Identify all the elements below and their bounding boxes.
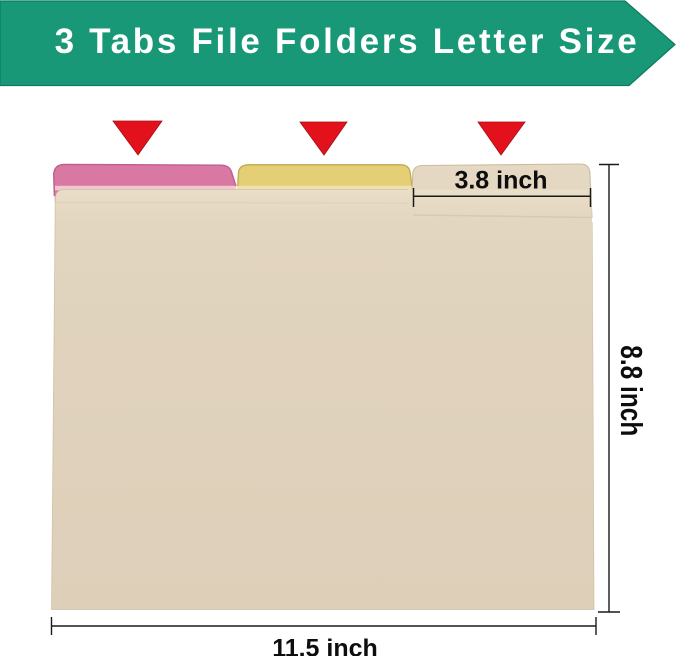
svg-text:8.8 inch: 8.8 inch <box>614 345 649 436</box>
svg-text:11.5 inch: 11.5 inch <box>272 635 378 656</box>
svg-text:3 Tabs File Folders Letter Siz: 3 Tabs File Folders Letter Size <box>55 22 640 61</box>
svg-text:3.8 inch: 3.8 inch <box>454 167 547 195</box>
